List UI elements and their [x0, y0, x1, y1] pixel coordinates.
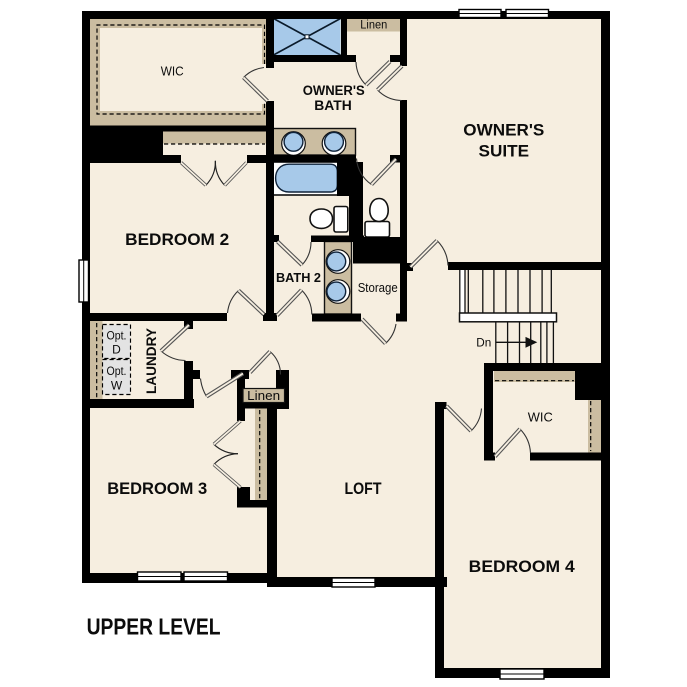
- svg-text:WIC: WIC: [161, 65, 184, 79]
- svg-text:OWNER'S: OWNER'S: [463, 121, 544, 140]
- svg-text:BATH: BATH: [314, 98, 352, 113]
- svg-text:LOFT: LOFT: [345, 479, 383, 498]
- svg-text:OWNER'S: OWNER'S: [303, 83, 365, 98]
- svg-text:Dn: Dn: [476, 336, 491, 350]
- svg-text:BEDROOM 3: BEDROOM 3: [107, 479, 207, 498]
- svg-text:Linen: Linen: [247, 388, 280, 403]
- svg-text:Linen: Linen: [360, 19, 387, 31]
- svg-text:D: D: [112, 343, 121, 357]
- svg-text:BATH 2: BATH 2: [276, 270, 321, 285]
- svg-text:Storage: Storage: [358, 281, 398, 295]
- svg-text:Opt.: Opt.: [107, 329, 127, 343]
- svg-text:BEDROOM 2: BEDROOM 2: [125, 230, 229, 249]
- svg-text:LAUNDRY: LAUNDRY: [143, 327, 159, 394]
- svg-text:BEDROOM 4: BEDROOM 4: [469, 557, 576, 576]
- svg-text:WIC: WIC: [528, 411, 553, 425]
- svg-text:SUITE: SUITE: [479, 141, 530, 160]
- svg-text:Opt.: Opt.: [107, 364, 127, 378]
- svg-text:W: W: [111, 378, 123, 392]
- svg-text:UPPER LEVEL: UPPER LEVEL: [87, 613, 221, 639]
